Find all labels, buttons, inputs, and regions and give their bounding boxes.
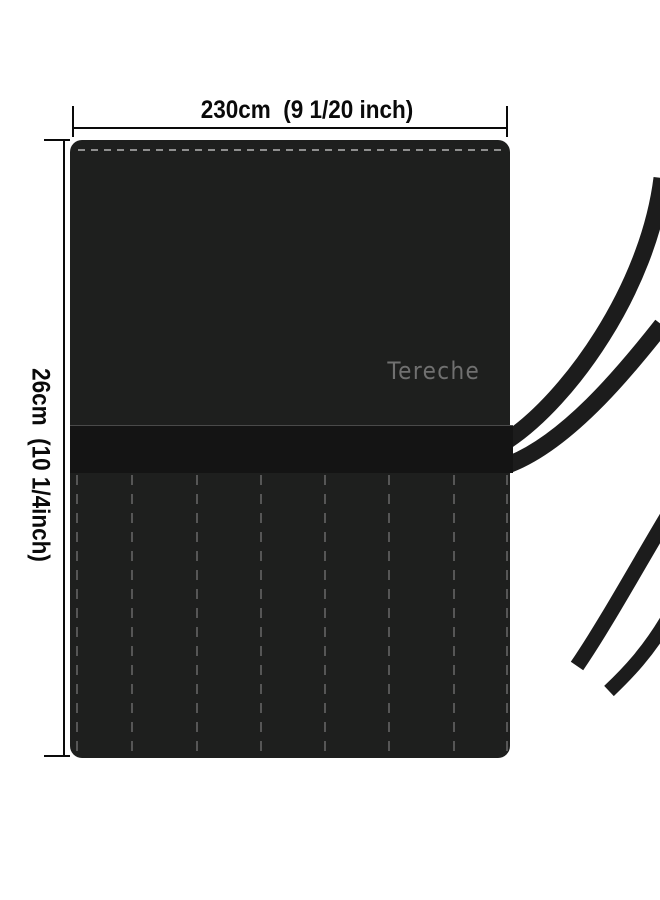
pocket-stitch-line (131, 475, 133, 753)
tie-strap-tail-lower (609, 618, 660, 691)
pocket-stitch-line (196, 475, 198, 753)
pouch-strap-band (70, 425, 513, 473)
pouch-flap-panel: Tereche (70, 140, 510, 425)
height-dimension-tick-bottom (44, 755, 70, 757)
brand-logo: Tereche (387, 357, 480, 385)
pocket-stitch-line (453, 475, 455, 753)
pocket-stitch-line (260, 475, 262, 753)
width-dimension-label: 230cm (9 1/20 inch) (112, 96, 503, 125)
height-dimension-line (63, 140, 65, 756)
pocket-panel (70, 473, 510, 758)
pocket-stitch-line (506, 475, 508, 753)
pouch-body: Tereche (70, 140, 510, 758)
width-dimension-tick-left (72, 106, 74, 137)
tie-strap-upper (508, 178, 660, 440)
top-stitch-line (78, 149, 502, 151)
product-dimension-diagram: Tereche 230cm (9 1/20 inch) 26cm (10 1/4… (0, 0, 660, 900)
pocket-stitch-line (324, 475, 326, 753)
width-dimension-tick-right (506, 106, 508, 137)
tie-strap-lower (505, 325, 660, 466)
height-dimension-tick-top (44, 139, 70, 141)
width-dimension-line (73, 127, 507, 129)
pocket-stitch-line (76, 475, 78, 753)
height-dimension-label: 26cm (10 1/4inch) (26, 368, 55, 562)
pocket-stitch-line (388, 475, 390, 753)
